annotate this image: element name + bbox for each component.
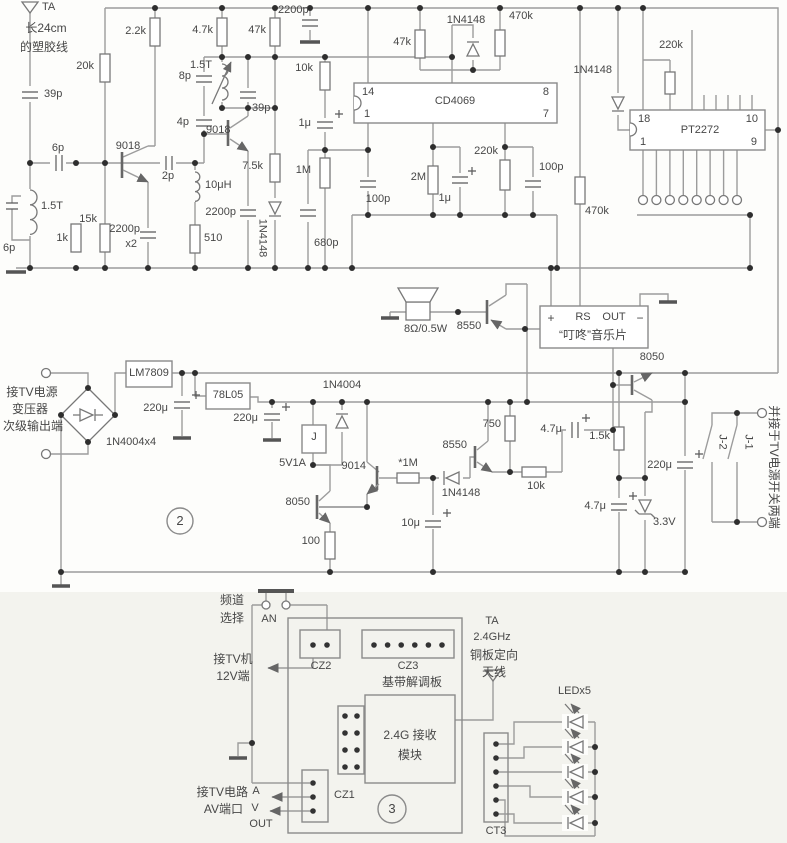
transistor-8550-audio — [487, 300, 506, 329]
section-2-circle — [167, 508, 193, 534]
ic-pt2272 — [630, 110, 765, 150]
schematic-svg — [0, 0, 787, 843]
bridge-rectifier — [61, 388, 115, 442]
relay-box — [302, 425, 326, 453]
inductors — [30, 62, 231, 234]
transistor-9018-q1 — [122, 152, 148, 182]
transistor-9018-q2 — [228, 120, 248, 151]
transistor-8050-right — [632, 373, 652, 395]
music-chip-box — [540, 306, 648, 348]
regulator-lm7809-box — [126, 361, 172, 387]
antenna-icon — [22, 2, 38, 13]
speaker-icon — [398, 288, 438, 320]
transistor-9014 — [367, 466, 379, 494]
pushbutton-an[interactable] — [258, 589, 294, 593]
regulator-78l05-box — [206, 383, 250, 409]
transistor-8050-left — [317, 495, 330, 523]
schematic-page: TA长24cm的塑胶线39p6p1.5T6p1k15k20k2.2k90182p… — [0, 0, 787, 843]
ic-cd4069 — [354, 83, 557, 123]
